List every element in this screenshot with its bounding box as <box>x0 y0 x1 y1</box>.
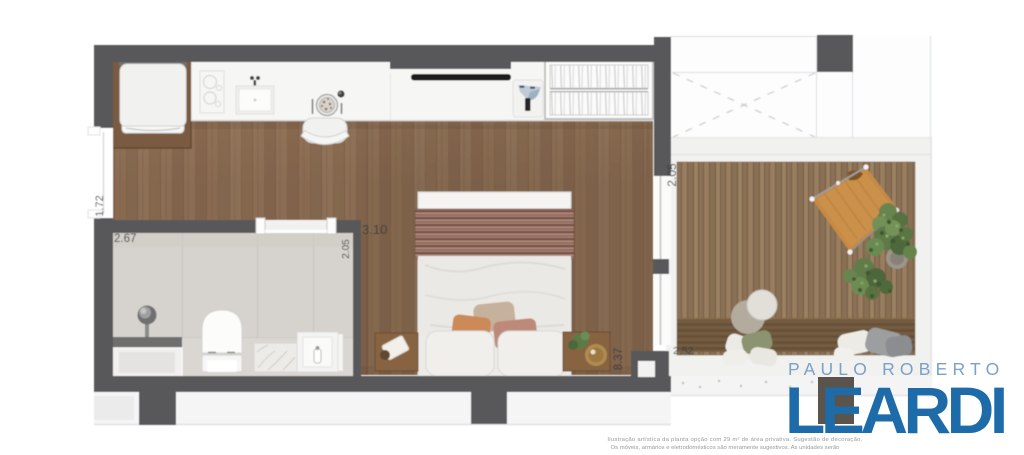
svg-text:Os móveis, armários e eletrodo: Os móveis, armários e eletrodomésticos s… <box>611 445 841 451</box>
svg-text:2.05: 2.05 <box>665 163 679 187</box>
svg-text:2.05: 2.05 <box>341 239 352 259</box>
svg-text:LEARDI: LEARDI <box>785 373 1004 447</box>
svg-text:2.52: 2.52 <box>673 345 694 357</box>
svg-text:Ilustração artística da planta: Ilustração artística da planta opção com… <box>607 437 862 443</box>
svg-text:3.10: 3.10 <box>362 222 387 237</box>
svg-text:8.37: 8.37 <box>613 348 625 370</box>
svg-text:1.72: 1.72 <box>94 195 106 216</box>
svg-text:2.67: 2.67 <box>114 233 136 245</box>
